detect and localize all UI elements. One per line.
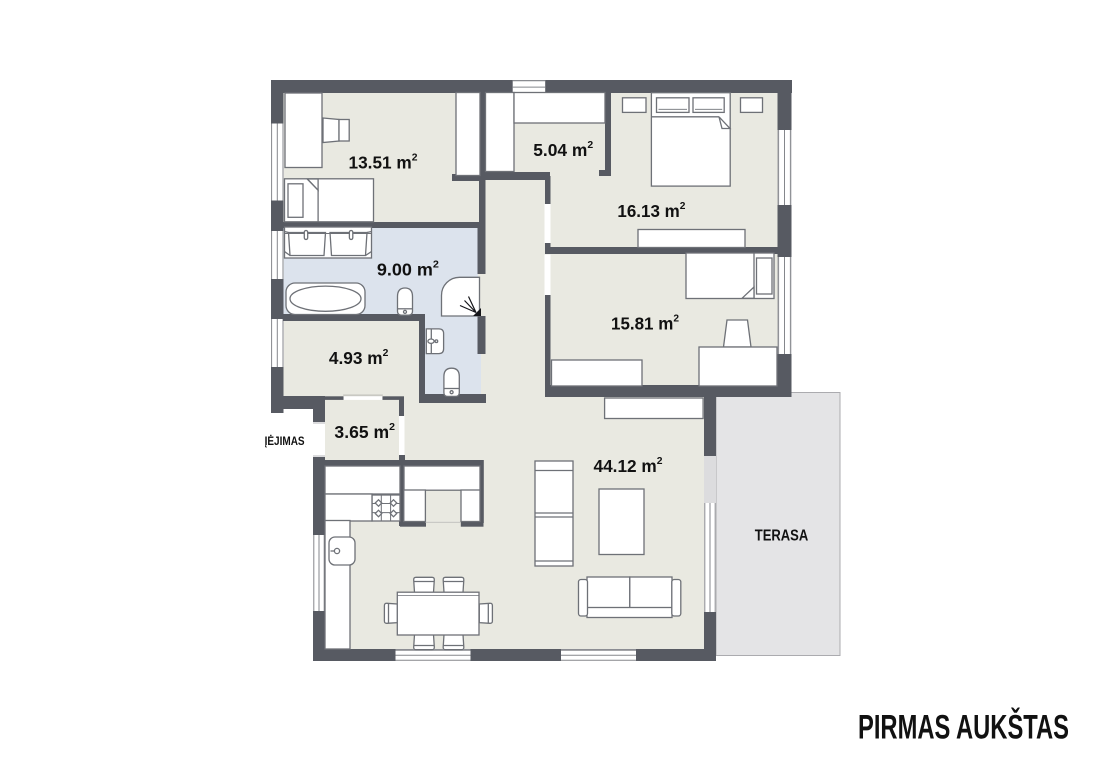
svg-text:5.04 m2: 5.04 m2	[533, 139, 593, 160]
svg-text:ĮĖJIMAS: ĮĖJIMAS	[265, 435, 305, 448]
svg-text:16.13 m2: 16.13 m2	[617, 200, 685, 221]
svg-text:9.00 m2: 9.00 m2	[377, 258, 439, 279]
svg-text:PIRMAS AUKŠTAS: PIRMAS AUKŠTAS	[858, 707, 1069, 747]
svg-text:15.81 m2: 15.81 m2	[611, 312, 679, 333]
svg-text:4.93 m2: 4.93 m2	[329, 347, 389, 368]
svg-text:44.12 m2: 44.12 m2	[594, 455, 663, 476]
svg-text:TERASA: TERASA	[755, 528, 809, 545]
svg-text:13.51 m2: 13.51 m2	[349, 152, 418, 173]
svg-text:3.65 m2: 3.65 m2	[334, 421, 395, 442]
